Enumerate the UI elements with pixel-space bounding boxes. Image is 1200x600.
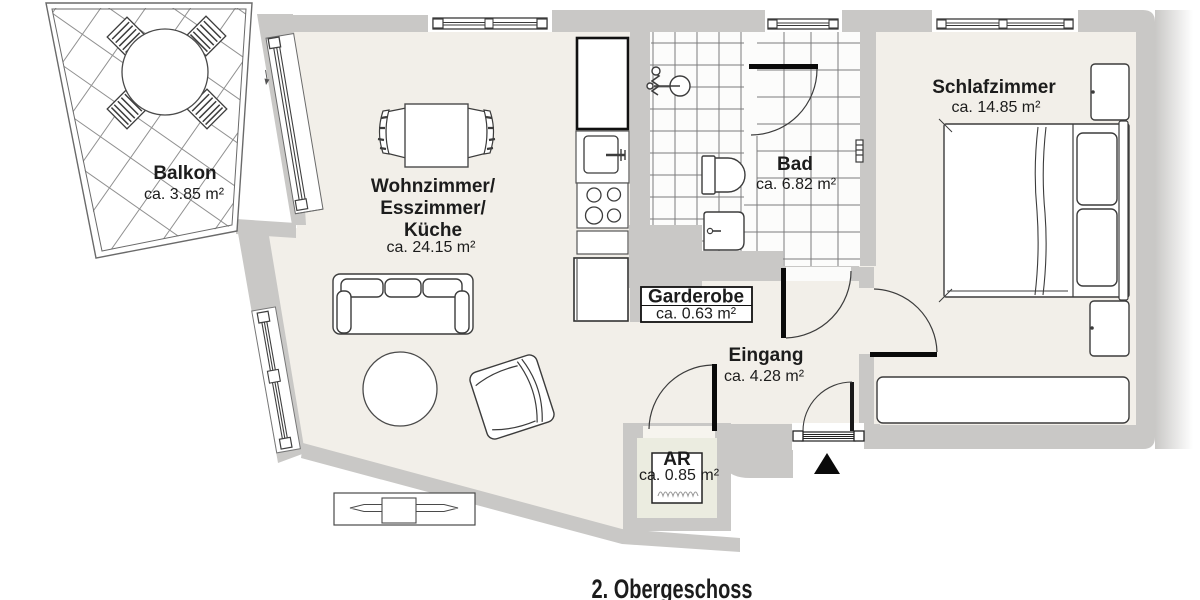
- svg-text:Wohnzimmer/: Wohnzimmer/: [371, 176, 496, 197]
- svg-text:ca. 0.63 m²: ca. 0.63 m²: [656, 306, 737, 323]
- svg-text:ca. 24.15 m²: ca. 24.15 m²: [387, 239, 477, 256]
- svg-text:ca. 4.28 m²: ca. 4.28 m²: [724, 368, 805, 385]
- svg-text:Küche: Küche: [404, 220, 462, 241]
- svg-text:Garderobe: Garderobe: [648, 287, 744, 308]
- svg-text:ca. 0.85 m²: ca. 0.85 m²: [639, 467, 720, 484]
- svg-text:2. Obergeschoss: 2. Obergeschoss: [592, 574, 753, 600]
- svg-text:Eingang: Eingang: [729, 345, 804, 366]
- svg-text:Balkon: Balkon: [153, 163, 216, 184]
- svg-text:Schlafzimmer: Schlafzimmer: [932, 77, 1056, 98]
- svg-text:ca. 14.85 m²: ca. 14.85 m²: [952, 99, 1042, 116]
- svg-text:Bad: Bad: [777, 154, 813, 175]
- svg-text:ca. 3.85 m²: ca. 3.85 m²: [144, 186, 225, 203]
- svg-text:ca. 6.82 m²: ca. 6.82 m²: [756, 176, 837, 193]
- svg-text:Esszimmer/: Esszimmer/: [380, 198, 486, 219]
